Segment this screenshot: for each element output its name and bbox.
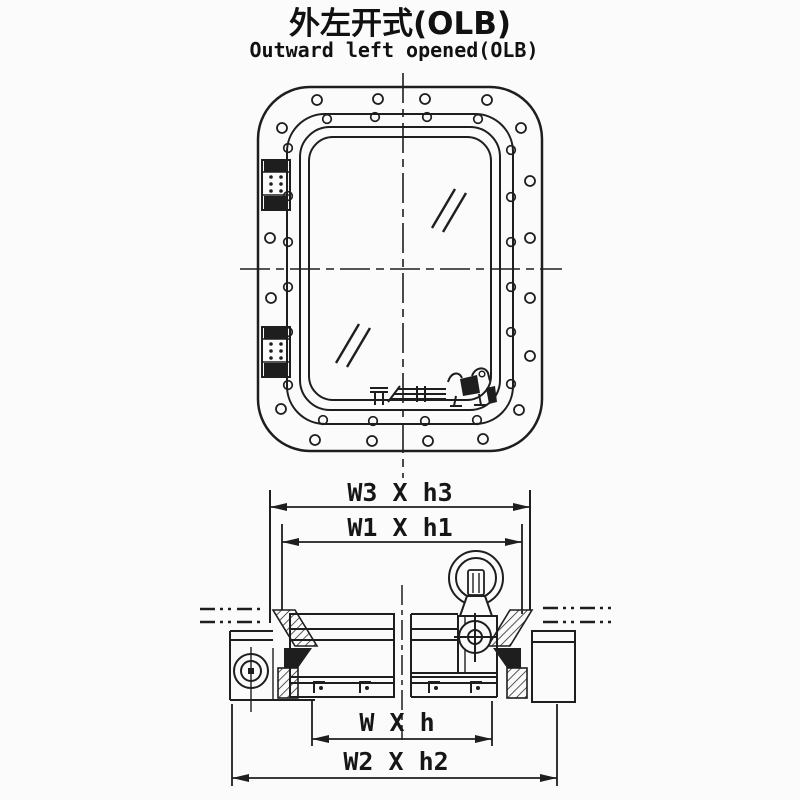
- hinge-top: [262, 160, 290, 210]
- toggle-bolt: [468, 570, 484, 595]
- dim-w3h3: W3 X h3: [270, 478, 530, 511]
- right-frame-bracket: [532, 631, 575, 702]
- dim-label-w2h2: W2 X h2: [343, 747, 448, 776]
- hinge-bottom: [262, 327, 290, 377]
- dim-label-w1h1: W1 X h1: [347, 513, 452, 542]
- window-drawing: 外左开式(OLB) Outward left opened(OLB): [0, 0, 800, 800]
- gasket-left: [284, 648, 312, 668]
- weld-gaskets-right: [488, 610, 532, 698]
- front-view: [240, 73, 562, 478]
- dim-label-wh: W X h: [359, 708, 434, 737]
- drawing-page: 外左开式(OLB) Outward left opened(OLB): [0, 0, 800, 800]
- dim-wh: W X h: [312, 701, 492, 746]
- latch-post: [370, 388, 388, 405]
- hinge-knuckle: [234, 647, 268, 712]
- latch-lever-bars: [388, 386, 446, 402]
- handle-hub: [454, 613, 497, 673]
- bulkhead-plates: [200, 490, 612, 623]
- dim-label-w3h3: W3 X h3: [347, 478, 452, 507]
- glass-hatch-marks: [336, 189, 466, 367]
- title-chinese: 外左开式(OLB): [289, 6, 511, 42]
- weld-gaskets-left: [273, 610, 317, 698]
- title-english: Outward left opened(OLB): [250, 38, 539, 62]
- wing-nut: [449, 551, 503, 616]
